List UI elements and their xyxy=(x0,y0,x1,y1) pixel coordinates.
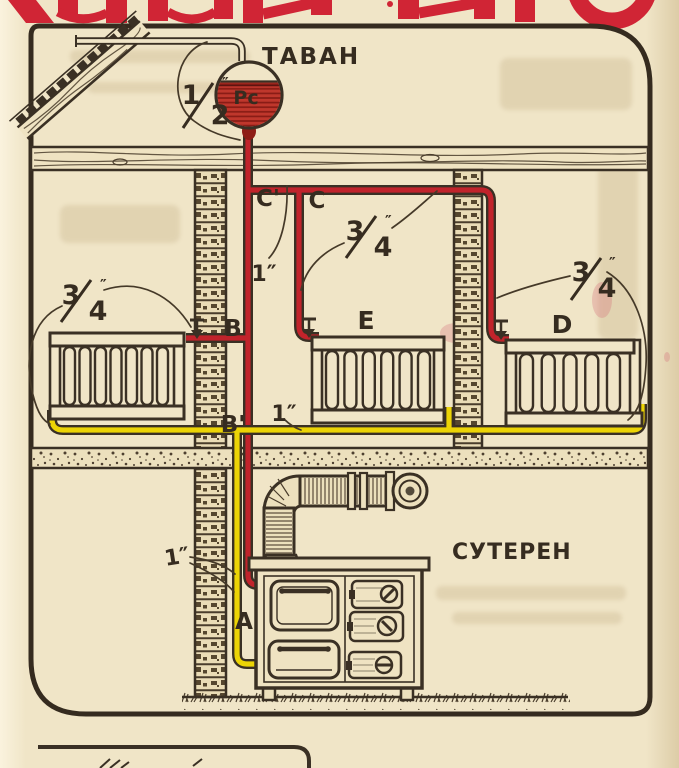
scanned-magazine-page: Рс xyxy=(0,0,679,768)
stove-leg xyxy=(263,688,275,700)
pipe-size-one-inch-basement: 1″ xyxy=(163,543,192,572)
half-den: 2 xyxy=(211,100,230,131)
tq-unit: ″ xyxy=(609,254,616,272)
boiler-stove xyxy=(249,558,429,700)
point-label-c: C xyxy=(309,188,326,214)
tq-den: 4 xyxy=(374,232,393,263)
oven-door-upper xyxy=(271,581,338,630)
damper-door-3 xyxy=(346,652,401,678)
heating-system-diagram: Рс xyxy=(0,0,679,768)
damper-door-2 xyxy=(347,612,403,641)
basement-title: СУТЕРЕН xyxy=(452,540,572,565)
tq-unit: ″ xyxy=(100,276,107,294)
point-label-b: B xyxy=(224,316,242,342)
tq-num: 3 xyxy=(572,257,591,288)
point-label-c-prime: C' xyxy=(256,186,280,212)
radiator-b xyxy=(50,333,184,419)
tq-den: 4 xyxy=(89,296,108,327)
tank-label: Рс xyxy=(233,87,258,109)
tq-den: 4 xyxy=(598,273,617,304)
basement-ground xyxy=(182,688,570,710)
floor-slab xyxy=(31,448,648,468)
point-label-b-prime: B' xyxy=(221,412,246,438)
point-label-a: A xyxy=(235,609,253,635)
pipe-size-one-inch-riser: 1″ xyxy=(251,262,276,287)
half-unit: ″ xyxy=(222,74,229,92)
oven-door-lower xyxy=(269,641,339,678)
tq-num: 3 xyxy=(346,216,365,247)
point-label-e: E xyxy=(357,306,374,335)
stove-top-plate xyxy=(249,558,429,570)
stove-leg xyxy=(401,688,413,700)
masonry-column-right xyxy=(454,170,482,448)
attic-title: ТАВАН xyxy=(262,44,360,70)
pipe-size-one-inch-return: 1″ xyxy=(271,402,296,427)
damper-door-1 xyxy=(349,581,402,608)
tq-unit: ″ xyxy=(385,212,392,230)
ceiling-beam xyxy=(31,147,648,170)
point-label-d: D xyxy=(552,310,573,339)
